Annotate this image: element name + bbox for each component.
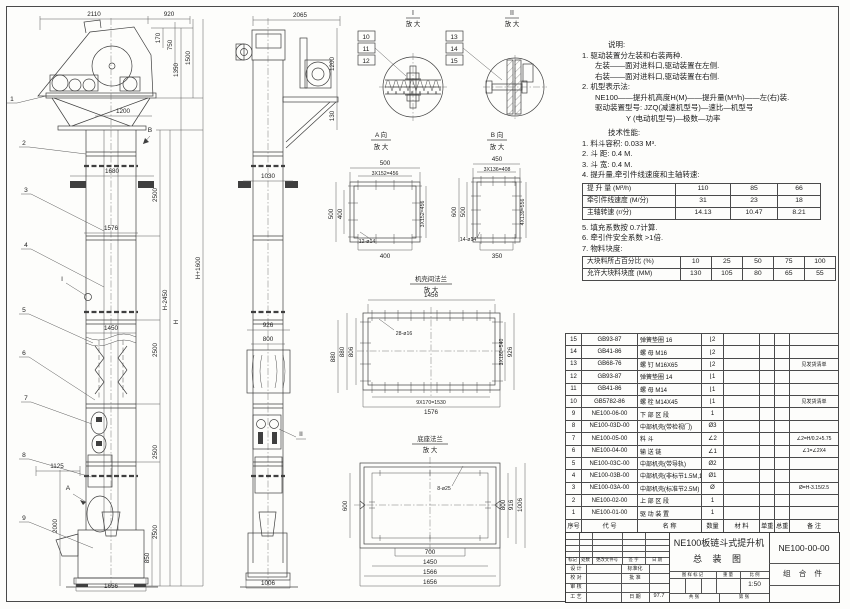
drawing-title-line2: 总 装 图 xyxy=(669,555,769,564)
capacity-speed-table: 提 升 量 (M³/h) 110 85 66 牵引件线速度 (M/分) 31 2… xyxy=(582,183,821,220)
bom-row: 9NE100-06-00下 部 区 段1 xyxy=(566,408,839,420)
balloon-5: 5 xyxy=(22,307,26,314)
sheet-total-label: 共 张 xyxy=(669,595,719,600)
bom-no: 15 xyxy=(566,334,582,346)
bom-unit-weight xyxy=(760,395,775,407)
drawing-sheet: 2110 920 1200 1680 1576 1450 1125 1656 1… xyxy=(0,0,850,609)
bom-part-name: 螺 栓 M14X45 xyxy=(638,395,702,407)
dim-a-3x152-top: 3X152=456 xyxy=(372,171,399,177)
bom-material xyxy=(724,470,760,482)
dim-f1-880: 880 xyxy=(339,346,346,357)
bom-material xyxy=(724,371,760,383)
bom-material xyxy=(724,457,760,469)
bom-total-weight xyxy=(775,334,790,346)
row-label: 主轴转速 (r/分) xyxy=(583,207,676,219)
dim-880: 880 xyxy=(330,351,337,362)
bom-part-name: 弹簧垫圈 16 xyxy=(638,334,702,346)
bom-remark: 见发货清单 xyxy=(790,395,839,407)
bom-qty: ∠2 xyxy=(702,433,724,445)
dim-920: 920 xyxy=(164,11,175,18)
bom-header-name: 名 称 xyxy=(638,519,702,532)
bom-total-weight xyxy=(775,445,790,457)
note-line: 左装——面对进料口,驱动装置在左侧. xyxy=(582,61,836,72)
tech-line: 3. 斗 宽: 0.4 M. xyxy=(582,160,836,171)
section-label-ii: II xyxy=(299,431,303,438)
value-cell: 14.13 xyxy=(676,207,731,219)
bom-remark xyxy=(790,457,839,469)
table-row: 主轴转速 (r/分) 14.13 10.47 8.21 xyxy=(583,207,821,219)
bom-qty: ⌊1 xyxy=(702,395,724,407)
dim-f2-1656: 1656 xyxy=(423,579,438,586)
dim-a-holes: 12-ø14 xyxy=(359,239,376,245)
craft-label: 工 艺 xyxy=(566,595,586,600)
bom-no: 11 xyxy=(566,383,582,395)
base-flange-view: 底座法兰 放 大 8-ø25 600 800 916 1006 700 1450… xyxy=(342,434,525,586)
bom-row: 8NE100-03D-00中部机壳(带检视门)Ø3 xyxy=(566,420,839,432)
dim-a-400-bottom: 400 xyxy=(380,253,391,260)
bom-code: NE100-03D-00 xyxy=(582,420,638,432)
bom-row: 3NE100-03A-00中部机壳(标准节2.5M)ØØ=H-3.15/2.5 xyxy=(566,482,839,494)
dim-1576: 1576 xyxy=(104,225,119,232)
bom-qty: Ø1 xyxy=(702,470,724,482)
dim-f1-1576: 1576 xyxy=(424,409,439,416)
value-cell: 105 xyxy=(711,269,742,281)
dim-1680: 1680 xyxy=(105,168,120,175)
bom-unit-weight xyxy=(760,334,775,346)
lump-size-table: 大块料所占百分比 (%) 10 25 50 75 100 允许大块料块度 (MM… xyxy=(582,256,836,281)
balloon-12: 12 xyxy=(362,58,370,65)
bom-row: 14GB41-86螺 母 M16⌊2 xyxy=(566,346,839,358)
value-cell: 23 xyxy=(731,195,778,207)
dim-f1-holes: 28-ø16 xyxy=(396,331,413,337)
bom-total-weight xyxy=(775,482,790,494)
bom-header-no: 序号 xyxy=(566,519,582,532)
bom-no: 4 xyxy=(566,470,582,482)
view-a-flange: A 向 放 大 500 3X152=456 500 400 3X152=456 … xyxy=(328,130,426,260)
bom-code: NE100-03A-00 xyxy=(582,482,638,494)
dim-750: 750 xyxy=(167,39,174,50)
value-cell: 85 xyxy=(731,183,778,195)
bom-remark xyxy=(790,334,839,346)
bom-unit-weight xyxy=(760,482,775,494)
balloon-2: 2 xyxy=(22,140,26,147)
bom-no: 5 xyxy=(566,457,582,469)
title-block: 标记 处数 更改文件号 签 字 日 期 设 计 标准化 校 对 批 准 审 核 … xyxy=(565,532,840,603)
rev-mark-label: 标记 xyxy=(566,558,579,562)
bom-row: 6NE100-04-00输 送 链∠1∠1=∠2X4 xyxy=(566,445,839,457)
dim-2065: 2065 xyxy=(293,12,308,19)
bom-material xyxy=(724,408,760,420)
bom-table: 15GB93-87弹簧垫圈 16⌊2 14GB41-86螺 母 M16⌊2 13… xyxy=(565,333,839,533)
value-cell: 18 xyxy=(778,195,821,207)
balloon-13: 13 xyxy=(450,34,458,41)
dim-926-side: 926 xyxy=(263,322,274,329)
bom-no: 9 xyxy=(566,408,582,420)
dim-f1-3x180: 3X180=540 xyxy=(499,339,505,366)
balloon-6: 6 xyxy=(22,350,26,357)
dim-2110: 2110 xyxy=(87,11,101,18)
bom-code: GB93-87 xyxy=(582,371,638,383)
bom-no: 12 xyxy=(566,371,582,383)
front-elevation-view: 2110 920 1200 1680 1576 1450 1125 1656 1… xyxy=(7,11,203,591)
bom-no: 7 xyxy=(566,433,582,445)
dim-f2-1006: 1006 xyxy=(517,498,524,513)
bom-qty: 1 xyxy=(702,507,724,519)
bom-remark xyxy=(790,383,839,395)
rev-sign-label: 签 字 xyxy=(622,558,645,562)
notes-title: 说明: xyxy=(582,40,836,51)
tech-line: 1. 料斗容积: 0.033 M³. xyxy=(582,139,836,150)
view-b-subtitle: 放 大 xyxy=(490,142,505,151)
bom-unit-weight xyxy=(760,371,775,383)
dim-1656: 1656 xyxy=(104,583,119,590)
balloon-15: 15 xyxy=(450,58,458,65)
bom-row: 5NE100-03C-00中部机壳(带导轨)Ø2 xyxy=(566,457,839,469)
dim-1030: 1030 xyxy=(261,173,276,180)
table-row: 提 升 量 (M³/h) 110 85 66 xyxy=(583,183,821,195)
bom-unit-weight xyxy=(760,507,775,519)
bom-code: NE100-03C-00 xyxy=(582,457,638,469)
bom-qty: ⌊1 xyxy=(702,371,724,383)
dim-b-3x136: 3X136=408 xyxy=(484,167,511,173)
bom-material xyxy=(724,495,760,507)
notes-panel: 说明: 1. 驱动装置分左装和右装两种. 左装——面对进料口,驱动装置在左侧. … xyxy=(582,40,836,284)
dim-b-4x139: 4X139=556 xyxy=(520,199,526,226)
bom-unit-weight xyxy=(760,383,775,395)
dim-f2-600: 600 xyxy=(342,500,349,511)
table-row: 大块料所占百分比 (%) 10 25 50 75 100 xyxy=(583,257,836,269)
dim-2500-c: 2500 xyxy=(152,445,159,460)
dim-1450: 1450 xyxy=(104,325,119,332)
reviewer-label: 审 核 xyxy=(566,585,586,590)
dim-f2-916: 916 xyxy=(508,499,515,510)
balloon-11: 11 xyxy=(363,46,370,53)
approver-label: 批 准 xyxy=(621,576,649,581)
note-line: NE100——提升机高度H(M)——提升量(M³/h)——左(右)装. xyxy=(582,93,836,104)
bom-no: 13 xyxy=(566,358,582,370)
bom-qty: ⌊2 xyxy=(702,334,724,346)
bom-code: GB68-76 xyxy=(582,358,638,370)
bom-row: 15GB93-87弹簧垫圈 16⌊2 xyxy=(566,334,839,346)
mid-casing-flange-view: 机壳间法兰 放 大 1456 28-ø16 880 806 3X180=540 … xyxy=(339,274,514,416)
balloon-8: 8 xyxy=(22,452,26,459)
balloon-3: 3 xyxy=(24,187,28,194)
bom-code: GB41-86 xyxy=(582,346,638,358)
bom-remark: Ø=H-3.15/2.5 xyxy=(790,482,839,494)
bom-unit-weight xyxy=(760,358,775,370)
dim-b-350: 350 xyxy=(492,253,503,260)
bom-part-name: 输 送 链 xyxy=(638,445,702,457)
bom-remark: ∠1=∠2X4 xyxy=(790,445,839,457)
tech-title: 技术性能: xyxy=(582,128,836,139)
scale-value: 1:50 xyxy=(740,582,769,589)
dim-130: 130 xyxy=(329,110,336,121)
dim-1350: 1350 xyxy=(173,63,180,78)
dim-b-450: 450 xyxy=(492,156,503,163)
dim-h-plus-1600: H+1600 xyxy=(195,256,202,279)
bom-part-name: 中部机壳(标准节2.5M) xyxy=(638,482,702,494)
value-cell: 110 xyxy=(676,183,731,195)
bom-remark xyxy=(790,371,839,383)
detail-ii-view: 13 14 15 II 放 大 xyxy=(446,10,547,119)
note-line: 右装——面对进料口,驱动装置在右侧. xyxy=(582,72,836,83)
dim-850: 850 xyxy=(144,552,151,563)
bom-header-total-weight: 总重 xyxy=(775,519,790,532)
view-arrow-b: B xyxy=(148,127,153,134)
assembly-type-label: 组 合 件 xyxy=(769,570,839,578)
balloon-4: 4 xyxy=(24,242,28,249)
bom-part-name: 上 部 区 段 xyxy=(638,495,702,507)
bom-material xyxy=(724,358,760,370)
value-cell: 100 xyxy=(804,257,835,269)
detail-i-title: I xyxy=(412,10,414,17)
drawing-mark-label: 图 样 标 记 xyxy=(669,573,716,577)
bom-code: NE100-01-00 xyxy=(582,507,638,519)
bom-material xyxy=(724,334,760,346)
rev-count-label: 处数 xyxy=(579,558,592,562)
bom-part-name: 螺 钉 M16X65 xyxy=(638,358,702,370)
dim-f2-holes: 8-ø25 xyxy=(437,486,451,492)
bom-header-qty: 数量 xyxy=(702,519,724,532)
checker-label: 校 对 xyxy=(566,576,586,581)
bom-part-name: 中部机壳(非标节1.5M,1M) xyxy=(638,470,702,482)
bom-total-weight xyxy=(775,346,790,358)
tech-line: 4. 提升量,牵引件线速度和主轴转速: xyxy=(582,170,836,181)
bom-row: 11GB41-86螺 母 M14⌊1 xyxy=(566,383,839,395)
bom-header-remark: 备 注 xyxy=(790,519,839,532)
dim-1500: 1500 xyxy=(185,51,192,66)
value-cell: 10.47 xyxy=(731,207,778,219)
side-elevation-view: 2065 1200 130 1030 926 800 880 1006 II xyxy=(236,12,340,588)
bom-code: NE100-04-00 xyxy=(582,445,638,457)
bom-row: 4NE100-03B-00中部机壳(非标节1.5M,1M)Ø1 xyxy=(566,470,839,482)
dim-b-500: 500 xyxy=(460,206,467,217)
bom-no: 3 xyxy=(566,482,582,494)
table-row: 允许大块料块度 (MM) 130 105 80 65 55 xyxy=(583,269,836,281)
bom-code: GB93-87 xyxy=(582,334,638,346)
dim-2500-b: 2500 xyxy=(152,343,159,358)
bom-unit-weight xyxy=(760,408,775,420)
bom-header-code: 代 号 xyxy=(582,519,638,532)
bom-qty: Ø xyxy=(702,482,724,494)
dim-2500-a: 2500 xyxy=(152,188,159,203)
bom-no: 6 xyxy=(566,445,582,457)
tech-line: 5. 填充系数按 0.7计算. xyxy=(582,223,836,234)
row-label: 允许大块料块度 (MM) xyxy=(583,269,681,281)
dim-f2-700: 700 xyxy=(425,549,436,556)
bom-material xyxy=(724,420,760,432)
bom-total-weight xyxy=(775,395,790,407)
scale-label: 比 例 xyxy=(740,573,769,577)
bom-remark: 见发货清单 xyxy=(790,358,839,370)
dim-2000: 2000 xyxy=(52,519,59,534)
detail-ii-subtitle: 放 大 xyxy=(505,19,520,28)
dim-h: H xyxy=(173,319,180,324)
bom-row: 7NE100-05-00料 斗∠2∠2=H/0.2+5.75 xyxy=(566,433,839,445)
bom-code: NE100-03B-00 xyxy=(582,470,638,482)
bom-part-name: 中部机壳(带检视门) xyxy=(638,420,702,432)
bom-qty: Ø2 xyxy=(702,457,724,469)
dim-h-minus-2450: H-2450 xyxy=(162,289,169,310)
drawing-number: NE100-00-00 xyxy=(769,544,839,553)
bom-material xyxy=(724,445,760,457)
title-block-left: 标记 处数 更改文件号 签 字 日 期 设 计 标准化 校 对 批 准 审 核 … xyxy=(566,533,670,602)
value-cell: 65 xyxy=(773,269,804,281)
dim-a-500-top: 500 xyxy=(380,160,391,167)
dim-1125: 1125 xyxy=(50,463,64,470)
rev-doc-label: 更改文件号 xyxy=(592,558,622,562)
bom-no: 10 xyxy=(566,395,582,407)
bom-qty: Ø3 xyxy=(702,420,724,432)
bom-unit-weight xyxy=(760,433,775,445)
bom-part-name: 驱 动 装 置 xyxy=(638,507,702,519)
tech-line: 6. 牵引件安全系数 >1倍. xyxy=(582,233,836,244)
table-row: 牵引件线速度 (M/分) 31 23 18 xyxy=(583,195,821,207)
bom-part-name: 中部机壳(带导轨) xyxy=(638,457,702,469)
tech-line: 7. 物料块度: xyxy=(582,244,836,255)
sheet-number-label: 第 张 xyxy=(719,595,769,600)
bom-no: 2 xyxy=(566,495,582,507)
bom-unit-weight xyxy=(760,420,775,432)
note-line: 驱动装置型号: JZQ(减速机型号)—速比—机型号 xyxy=(582,103,836,114)
bom-material xyxy=(724,507,760,519)
balloon-14: 14 xyxy=(450,46,458,53)
value-cell: 80 xyxy=(742,269,773,281)
bom-total-weight xyxy=(775,470,790,482)
bom-total-weight xyxy=(775,457,790,469)
value-cell: 50 xyxy=(742,257,773,269)
dim-f1-9x170: 9X170=1530 xyxy=(416,400,446,406)
bom-total-weight xyxy=(775,507,790,519)
dim-1200: 1200 xyxy=(116,108,131,115)
bom-row: 10GB5782-86螺 栓 M14X45⌊1见发货清单 xyxy=(566,395,839,407)
detail-i-subtitle: 放 大 xyxy=(406,19,421,28)
view-a-title: A 向 xyxy=(375,130,387,139)
bom-code: NE100-06-00 xyxy=(582,408,638,420)
bom-total-weight xyxy=(775,371,790,383)
standardization-label: 标准化 xyxy=(621,567,649,572)
bom-unit-weight xyxy=(760,346,775,358)
bom-material xyxy=(724,482,760,494)
bom-no: 8 xyxy=(566,420,582,432)
value-cell: 31 xyxy=(676,195,731,207)
dim-800-side: 800 xyxy=(263,336,274,343)
bom-remark xyxy=(790,507,839,519)
bom-remark xyxy=(790,470,839,482)
value-cell: 75 xyxy=(773,257,804,269)
bom-code: GB5782-86 xyxy=(582,395,638,407)
dim-f1-926: 926 xyxy=(507,346,514,357)
bom-total-weight xyxy=(775,408,790,420)
bom-material xyxy=(724,383,760,395)
bom-row: 13GB68-76螺 钉 M16X65⌊2见发货清单 xyxy=(566,358,839,370)
balloon-1: 1 xyxy=(10,96,14,103)
tech-line: 2. 斗 距: 0.4 M. xyxy=(582,149,836,160)
view-a-subtitle: 放 大 xyxy=(374,142,389,151)
bom-code: NE100-02-00 xyxy=(582,495,638,507)
balloon-9: 9 xyxy=(22,515,26,522)
detail-i-view: 10 11 12 I 放 大 xyxy=(358,10,447,121)
weight-label: 重 量 xyxy=(716,573,740,577)
bom-part-name: 螺 母 M16 xyxy=(638,346,702,358)
dim-f2-1450: 1450 xyxy=(423,559,438,566)
bom-part-name: 下 部 区 段 xyxy=(638,408,702,420)
flange-base-title: 底座法兰 xyxy=(417,434,443,443)
dim-f1-806: 806 xyxy=(348,346,355,357)
bom-qty: 1 xyxy=(702,495,724,507)
view-arrow-a: A xyxy=(66,485,71,492)
bom-remark: ∠2=H/0.2+5.75 xyxy=(790,433,839,445)
dim-2500-d: 2500 xyxy=(152,525,159,540)
bom-code: GB41-86 xyxy=(582,383,638,395)
bom-part-name: 料 斗 xyxy=(638,433,702,445)
designer-label: 设 计 xyxy=(566,567,586,572)
bom-unit-weight xyxy=(760,457,775,469)
bom-material xyxy=(724,346,760,358)
bom-total-weight xyxy=(775,495,790,507)
date-value: 97.7 xyxy=(649,594,669,600)
dim-f1-1456: 1456 xyxy=(424,292,439,299)
balloon-callouts: 1 2 3 4 5 6 7 8 9 I A B xyxy=(7,96,153,548)
bom-remark xyxy=(790,408,839,420)
row-label: 大块料所占百分比 (%) xyxy=(583,257,681,269)
bom-unit-weight xyxy=(760,445,775,457)
bom-header-material: 材 料 xyxy=(724,519,760,532)
value-cell: 25 xyxy=(711,257,742,269)
view-b-flange: B 向 放 大 450 3X136=408 600 500 4X139=556 … xyxy=(451,130,526,260)
value-cell: 8.21 xyxy=(778,207,821,219)
row-label: 牵引件线速度 (M/分) xyxy=(583,195,676,207)
bom-row: 1NE100-01-00驱 动 装 置1 xyxy=(566,507,839,519)
flange-base-subtitle: 放 大 xyxy=(423,445,438,454)
bom-row: 12GB93-87弹簧垫圈 14⌊1 xyxy=(566,371,839,383)
bom-total-weight xyxy=(775,433,790,445)
drawing-title-line1: NE100板链斗式提升机 xyxy=(669,539,769,548)
date-label: 日 期 xyxy=(621,595,649,600)
dim-f2-1566: 1566 xyxy=(423,569,438,576)
bom-material xyxy=(724,395,760,407)
value-cell: 55 xyxy=(804,269,835,281)
bom-part-name: 弹簧垫圈 14 xyxy=(638,371,702,383)
title-block-middle: NE100板链斗式提升机 总 装 图 图 样 标 记 重 量 比 例 1:50 … xyxy=(669,533,770,602)
dim-a-500-left: 500 xyxy=(328,208,335,219)
note-line: 1. 驱动装置分左装和右装两种. xyxy=(582,51,836,62)
row-label: 提 升 量 (M³/h) xyxy=(583,183,676,195)
value-cell: 10 xyxy=(680,257,711,269)
title-block-right: NE100-00-00 组 合 件 xyxy=(769,533,839,602)
balloon-10: 10 xyxy=(362,34,370,41)
bom-remark xyxy=(790,495,839,507)
bom-remark xyxy=(790,420,839,432)
bom-total-weight xyxy=(775,383,790,395)
bom-total-weight xyxy=(775,420,790,432)
bom-no: 14 xyxy=(566,346,582,358)
value-cell: 130 xyxy=(680,269,711,281)
value-cell: 66 xyxy=(778,183,821,195)
dim-b-holes: 14-ø14 xyxy=(460,237,477,243)
dim-f2-800: 800 xyxy=(500,499,507,510)
note-line: Y (电动机型号)—极数—功率 xyxy=(582,114,836,125)
bom-header-row: 序号代 号名 称数量材 料单重总重备 注 xyxy=(566,519,839,532)
dim-1200-side: 1200 xyxy=(329,57,336,72)
bom-code: NE100-05-00 xyxy=(582,433,638,445)
view-b-title: B 向 xyxy=(491,130,503,139)
bom-header-unit-weight: 单重 xyxy=(760,519,775,532)
bom-row: 2NE100-02-00上 部 区 段1 xyxy=(566,495,839,507)
bom-qty: ⌊1 xyxy=(702,383,724,395)
bom-remark xyxy=(790,346,839,358)
note-line: 2. 机型表示法: xyxy=(582,82,836,93)
